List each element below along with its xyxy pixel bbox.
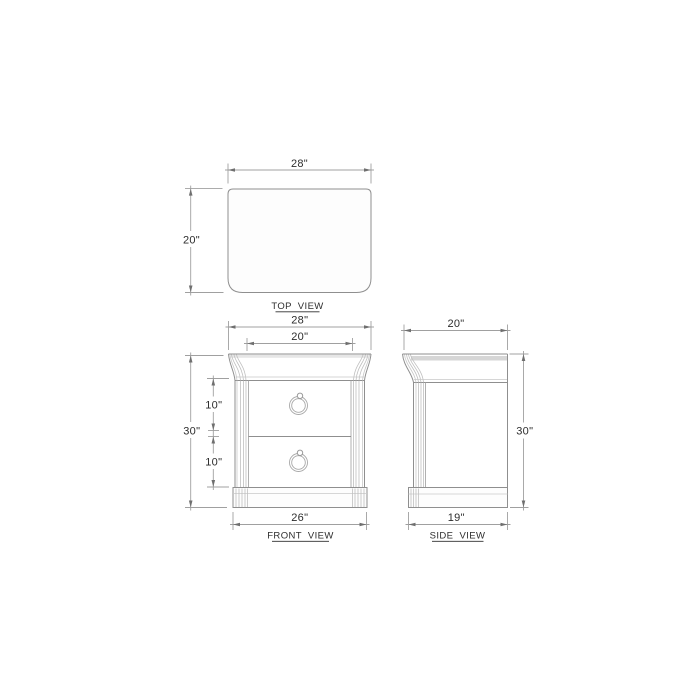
- side-body: [414, 354, 508, 488]
- front-height-value: 30": [183, 425, 200, 437]
- side-height-value: 30": [516, 426, 533, 438]
- technical-drawing: 28" 20" TOP VIEW: [0, 0, 700, 700]
- side-view: 20" 30" 19" SIDE VIEW: [401, 318, 536, 542]
- front-opening-width-dimension: 20": [244, 331, 356, 351]
- front-base: [233, 488, 367, 508]
- front-lower-drawer-value: 10": [205, 456, 222, 468]
- side-depth-value: 20": [447, 318, 464, 330]
- top-view-width-dimension: 28": [225, 158, 374, 184]
- front-upper-drawer-value: 10": [205, 399, 222, 411]
- front-view-label: FRONT VIEW: [267, 531, 334, 542]
- side-crown: [403, 354, 508, 383]
- side-height-dimension: 30": [510, 351, 536, 511]
- front-opening-width-value: 20": [291, 331, 308, 343]
- front-base-width-value: 26": [291, 512, 308, 524]
- top-view-depth-dimension: 20": [181, 186, 224, 296]
- top-view-outline: [228, 189, 371, 293]
- side-depth-dimension: 20": [401, 318, 511, 350]
- side-base-depth-dimension: 19": [406, 512, 511, 530]
- top-view: 28" 20" TOP VIEW: [181, 158, 375, 312]
- front-drawer-height-dimensions: 10" 10": [203, 376, 229, 491]
- side-base: [409, 488, 508, 508]
- side-base-depth-value: 19": [448, 512, 465, 524]
- front-crown: [229, 354, 372, 381]
- drawer-pull-top: [290, 393, 308, 414]
- side-view-label: SIDE VIEW: [430, 531, 486, 542]
- front-overall-width-value: 28": [291, 315, 308, 327]
- front-drawers: [249, 393, 352, 471]
- drawing-canvas: 28" 20" TOP VIEW: [0, 0, 700, 700]
- front-view: 28" 20" 30": [181, 315, 375, 542]
- top-view-width-value: 28": [291, 158, 308, 170]
- top-view-label: TOP VIEW: [271, 301, 323, 312]
- top-view-depth-value: 20": [183, 235, 200, 247]
- drawer-pull-bottom: [290, 450, 308, 471]
- front-base-width-dimension: 26": [230, 512, 370, 530]
